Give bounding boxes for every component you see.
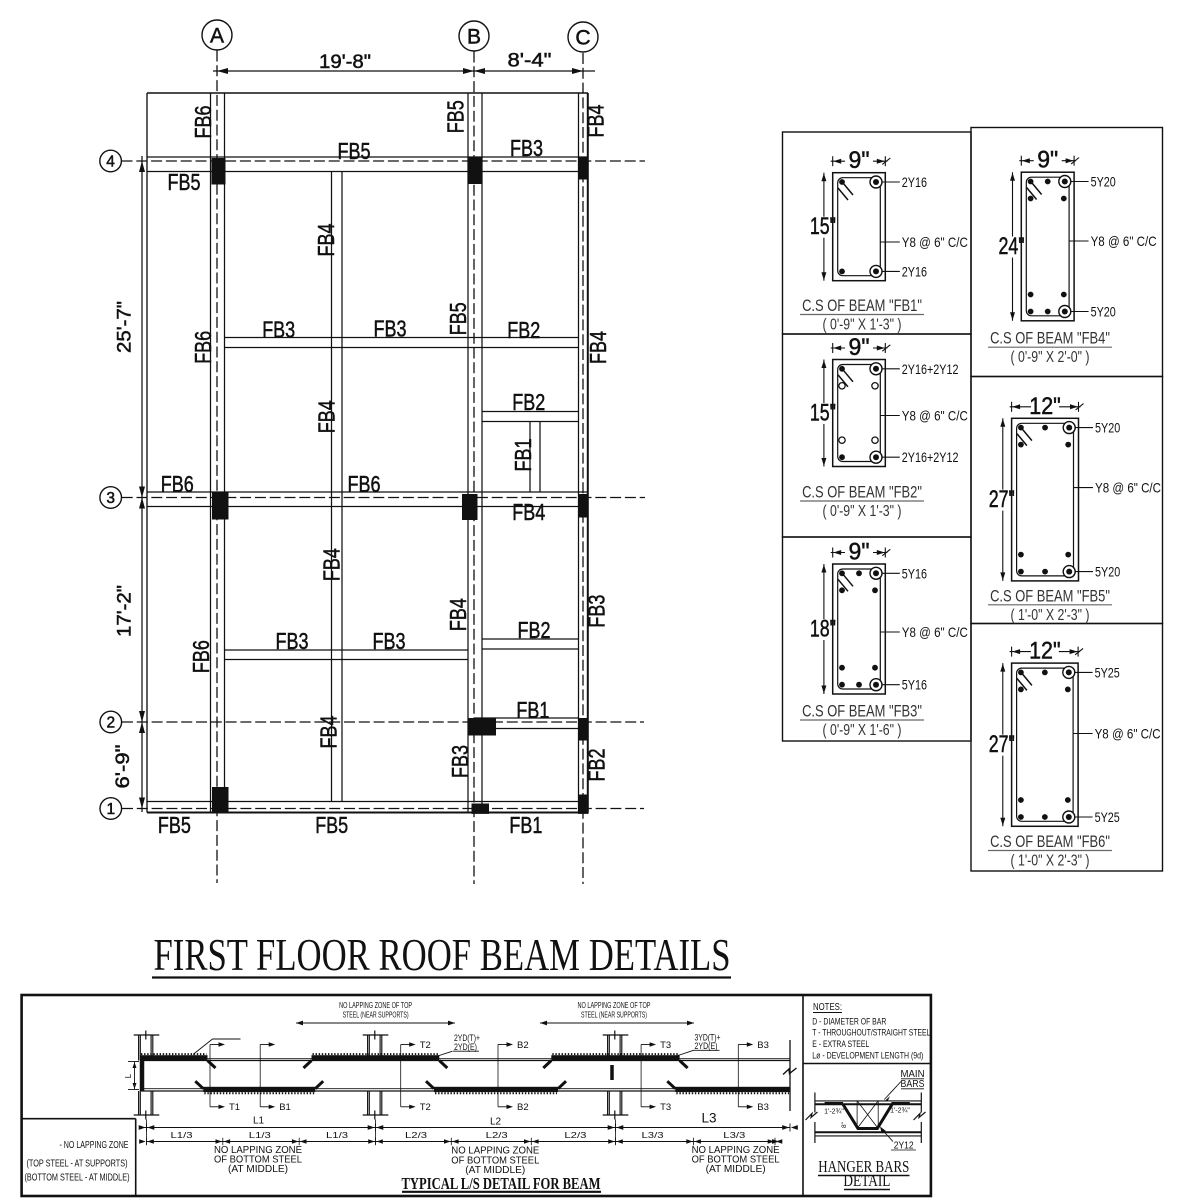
svg-text:B2: B2 [517, 1102, 529, 1113]
svg-text:FB5: FB5 [443, 100, 469, 133]
svg-text:L2/3: L2/3 [486, 1130, 508, 1140]
svg-text:6'-9": 6'-9" [113, 745, 134, 789]
svg-text:L: L [124, 1073, 133, 1078]
svg-text:L1/3: L1/3 [249, 1130, 271, 1140]
svg-text:(TOP STEEL - AT SUPPORTS): (TOP STEEL - AT SUPPORTS) [27, 1159, 128, 1170]
svg-text:FB2: FB2 [583, 749, 609, 782]
svg-text:5Y20: 5Y20 [1091, 304, 1116, 320]
svg-text:15": 15" [810, 400, 836, 427]
svg-text:(BOTTOM STEEL - AT MIDDLE): (BOTTOM STEEL - AT MIDDLE) [25, 1173, 130, 1184]
svg-text:Y8 @ 6" C/C: Y8 @ 6" C/C [902, 234, 968, 250]
svg-text:FB5: FB5 [168, 169, 201, 195]
svg-text:FB3: FB3 [510, 135, 543, 161]
svg-text:T1: T1 [229, 1102, 240, 1113]
svg-text:Lø - DEVELOPMENT LENGTH (9d): Lø - DEVELOPMENT LENGTH (9d) [812, 1051, 923, 1061]
svg-text:19'-8": 19'-8" [319, 52, 371, 73]
svg-text:FB2: FB2 [507, 317, 540, 343]
svg-text:FB5: FB5 [315, 812, 348, 838]
svg-text:(AT MIDDLE): (AT MIDDLE) [706, 1163, 766, 1175]
svg-text:2YD(E): 2YD(E) [695, 1041, 718, 1051]
svg-text:L2/3: L2/3 [405, 1130, 427, 1140]
svg-text:8": 8" [841, 1121, 848, 1128]
svg-text:A: A [210, 25, 224, 48]
svg-text:L3: L3 [701, 1111, 716, 1126]
svg-text:T2: T2 [420, 1102, 431, 1113]
svg-text:STEEL (NEAR SUPPORTS): STEEL (NEAR SUPPORTS) [343, 1009, 409, 1019]
svg-text:T2: T2 [420, 1040, 431, 1051]
svg-text:L2/3: L2/3 [564, 1130, 586, 1140]
svg-text:C.S OF BEAM "FB2": C.S OF BEAM "FB2" [802, 483, 922, 502]
svg-text:2Y16: 2Y16 [902, 263, 927, 279]
svg-text:FB1: FB1 [509, 812, 542, 838]
svg-text:C.S OF BEAM "FB6": C.S OF BEAM "FB6" [990, 832, 1110, 851]
svg-text:FB6: FB6 [190, 331, 216, 364]
svg-text:FIRST FLOOR ROOF BEAM DETAILS: FIRST FLOOR ROOF BEAM DETAILS [154, 929, 731, 980]
svg-text:FB6: FB6 [161, 471, 194, 497]
svg-text:18": 18" [810, 616, 836, 643]
svg-text:L1: L1 [253, 1116, 265, 1127]
svg-text:12": 12" [1029, 638, 1061, 665]
svg-text:FB3: FB3 [583, 595, 609, 628]
svg-text:FB1: FB1 [516, 697, 549, 723]
svg-text:T3: T3 [660, 1102, 671, 1113]
svg-text:25'-7": 25'-7" [115, 301, 136, 353]
svg-text:5Y20: 5Y20 [1095, 420, 1120, 436]
svg-text:Y8 @ 6" C/C: Y8 @ 6" C/C [1091, 233, 1157, 249]
svg-text:B2: B2 [517, 1040, 529, 1051]
svg-text:( 0'-9" X 1'-6" ): ( 0'-9" X 1'-6" ) [822, 722, 901, 739]
svg-text:FB4: FB4 [445, 598, 471, 631]
svg-text:FB4: FB4 [512, 499, 545, 525]
svg-text:FB4: FB4 [314, 400, 340, 433]
svg-text:L1/3: L1/3 [171, 1130, 193, 1140]
svg-text:27": 27" [989, 731, 1015, 758]
svg-text:27": 27" [989, 486, 1015, 513]
svg-text:9": 9" [1037, 147, 1058, 174]
svg-text:FB3: FB3 [373, 628, 406, 654]
svg-text:3: 3 [106, 490, 115, 507]
svg-text:FB4: FB4 [585, 331, 611, 364]
svg-text:STEEL (NEAR SUPPORTS): STEEL (NEAR SUPPORTS) [581, 1009, 647, 1019]
svg-text:( 0'-9" X 2'-0" ): ( 0'-9" X 2'-0" ) [1010, 349, 1089, 366]
svg-text:FB6: FB6 [190, 106, 216, 139]
svg-text:1'-2¾": 1'-2¾" [890, 1108, 910, 1115]
svg-text:15": 15" [810, 213, 836, 240]
svg-text:5Y16: 5Y16 [902, 677, 927, 693]
svg-text:DETAIL: DETAIL [843, 1171, 890, 1190]
svg-text:FB3: FB3 [262, 317, 295, 343]
svg-text:L3/3: L3/3 [723, 1130, 745, 1140]
svg-text:9": 9" [849, 539, 870, 566]
svg-text:FB4: FB4 [318, 548, 344, 581]
svg-text:5Y20: 5Y20 [1091, 174, 1116, 190]
svg-text:4: 4 [106, 154, 115, 171]
svg-text:17'-2": 17'-2" [115, 585, 136, 637]
svg-text:Y8 @ 6" C/C: Y8 @ 6" C/C [902, 624, 968, 640]
svg-text:FB4: FB4 [583, 105, 609, 138]
svg-text:C.S OF BEAM "FB4": C.S OF BEAM "FB4" [990, 329, 1110, 348]
svg-text:B3: B3 [757, 1040, 769, 1051]
svg-text:D - DIAMETER OF BAR: D - DIAMETER OF BAR [812, 1016, 886, 1026]
svg-text:Y8 @ 6" C/C: Y8 @ 6" C/C [1095, 726, 1161, 742]
svg-text:FB6: FB6 [348, 471, 381, 497]
svg-text:FB2: FB2 [518, 617, 551, 643]
svg-text:T3: T3 [660, 1040, 671, 1051]
svg-text:5Y16: 5Y16 [902, 565, 927, 581]
svg-text:FB6: FB6 [188, 640, 214, 673]
svg-text:FB2: FB2 [512, 389, 545, 415]
svg-text:( 0'-9" X 1'-3" ): ( 0'-9" X 1'-3" ) [822, 503, 901, 520]
svg-text:B: B [467, 26, 481, 49]
svg-text:(AT MIDDLE): (AT MIDDLE) [228, 1163, 288, 1175]
svg-text:5Y25: 5Y25 [1095, 664, 1120, 680]
svg-text:FB1: FB1 [510, 439, 536, 472]
svg-text:9": 9" [849, 147, 870, 174]
svg-text:( 1'-0" X 2'-3" ): ( 1'-0" X 2'-3" ) [1010, 853, 1089, 870]
svg-text:( 1'-0" X 2'-3" ): ( 1'-0" X 2'-3" ) [1010, 607, 1089, 624]
svg-text:FB3: FB3 [276, 628, 309, 654]
svg-text:B1: B1 [279, 1102, 291, 1113]
svg-text:FB3: FB3 [447, 745, 473, 778]
svg-text:C: C [575, 27, 590, 50]
svg-text:24": 24" [998, 233, 1024, 260]
svg-text:T - THROUGHOUT/STRAIGHT STEEL: T - THROUGHOUT/STRAIGHT STEEL [812, 1028, 930, 1038]
svg-text:- NO LAPPING ZONE: - NO LAPPING ZONE [60, 1140, 129, 1151]
svg-text:FB5: FB5 [445, 302, 471, 335]
svg-text:2Y16: 2Y16 [902, 174, 927, 190]
svg-text:B3: B3 [757, 1102, 769, 1113]
svg-text:TYPICAL L/S DETAIL FOR BEAM: TYPICAL L/S DETAIL FOR BEAM [402, 1174, 601, 1193]
svg-text:C.S OF BEAM "FB1": C.S OF BEAM "FB1" [802, 296, 922, 315]
svg-text:L3/3: L3/3 [642, 1130, 664, 1140]
svg-text:FB5: FB5 [158, 812, 191, 838]
svg-text:Y8 @ 6" C/C: Y8 @ 6" C/C [902, 408, 968, 424]
svg-text:( 0'-9" X 1'-3" ): ( 0'-9" X 1'-3" ) [822, 317, 901, 334]
svg-text:FB4: FB4 [313, 224, 339, 257]
svg-text:5Y20: 5Y20 [1095, 564, 1120, 580]
svg-text:1: 1 [106, 801, 115, 818]
svg-text:9": 9" [849, 334, 870, 361]
svg-text:FB3: FB3 [374, 316, 407, 342]
svg-text:C.S OF BEAM "FB5": C.S OF BEAM "FB5" [990, 586, 1110, 605]
svg-text:8'-4": 8'-4" [508, 51, 552, 72]
svg-text:FB5: FB5 [338, 138, 371, 164]
svg-text:5Y25: 5Y25 [1095, 809, 1120, 825]
svg-text:BARS: BARS [901, 1079, 925, 1090]
svg-text:NOTES:: NOTES: [813, 1001, 842, 1013]
svg-text:2Y16+2Y12: 2Y16+2Y12 [902, 449, 959, 465]
svg-text:L1/3: L1/3 [326, 1130, 348, 1140]
svg-text:2: 2 [106, 715, 115, 732]
svg-text:2YD(E): 2YD(E) [454, 1042, 477, 1052]
svg-text:12": 12" [1029, 393, 1061, 420]
svg-text:Y8 @ 6" C/C: Y8 @ 6" C/C [1095, 480, 1161, 496]
svg-text:1'-2¾": 1'-2¾" [824, 1109, 844, 1116]
svg-text:2Y16+2Y12: 2Y16+2Y12 [902, 361, 959, 377]
svg-text:FB4: FB4 [316, 716, 342, 749]
svg-text:C.S OF BEAM "FB3": C.S OF BEAM "FB3" [802, 702, 922, 721]
svg-text:L2: L2 [490, 1117, 502, 1128]
svg-text:E - EXTRA STEEL: E - EXTRA STEEL [812, 1039, 869, 1049]
